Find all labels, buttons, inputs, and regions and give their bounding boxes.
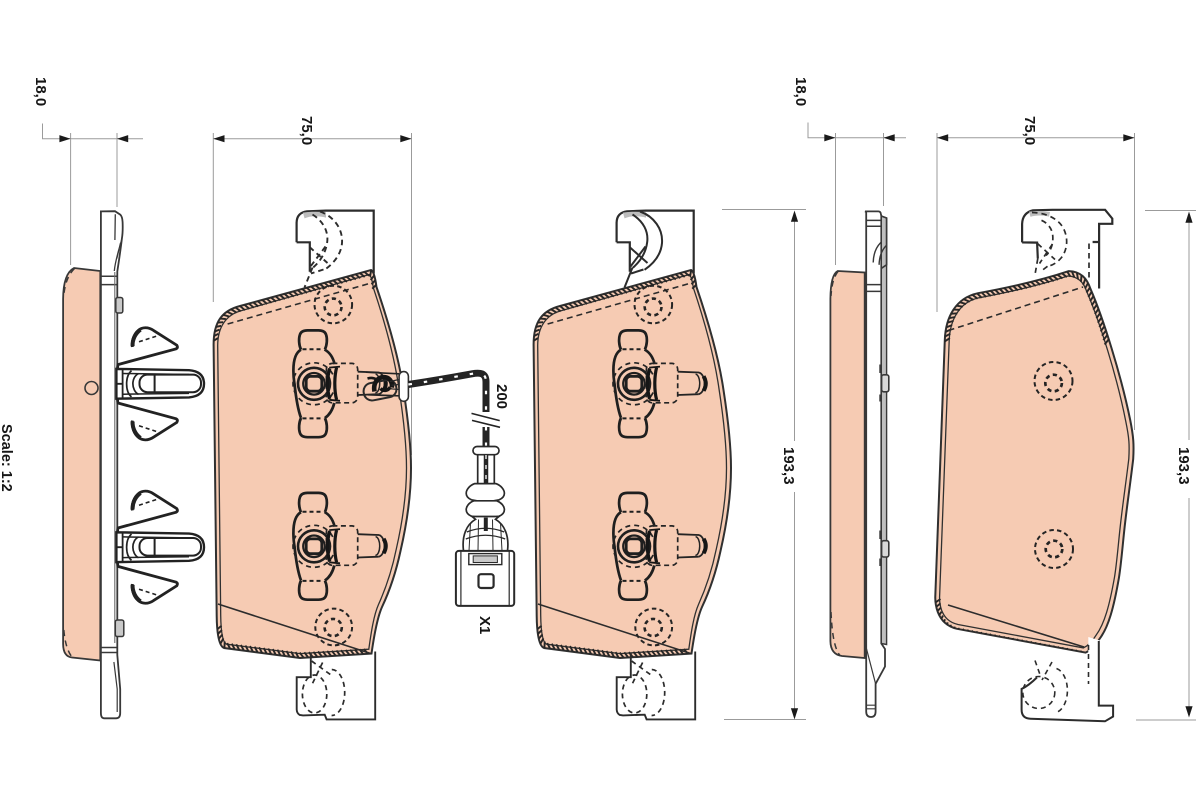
svg-text:200: 200 <box>493 384 510 409</box>
svg-text:193,3: 193,3 <box>1175 447 1192 485</box>
svg-text:75,0: 75,0 <box>298 116 315 145</box>
svg-text:18,0: 18,0 <box>32 77 49 106</box>
svg-text:193,3: 193,3 <box>780 447 797 485</box>
svg-text:75,0: 75,0 <box>1021 116 1038 145</box>
svg-text:18,0: 18,0 <box>792 77 809 106</box>
svg-text:X1: X1 <box>476 616 493 634</box>
svg-text:Scale: 1:2: Scale: 1:2 <box>0 424 14 492</box>
